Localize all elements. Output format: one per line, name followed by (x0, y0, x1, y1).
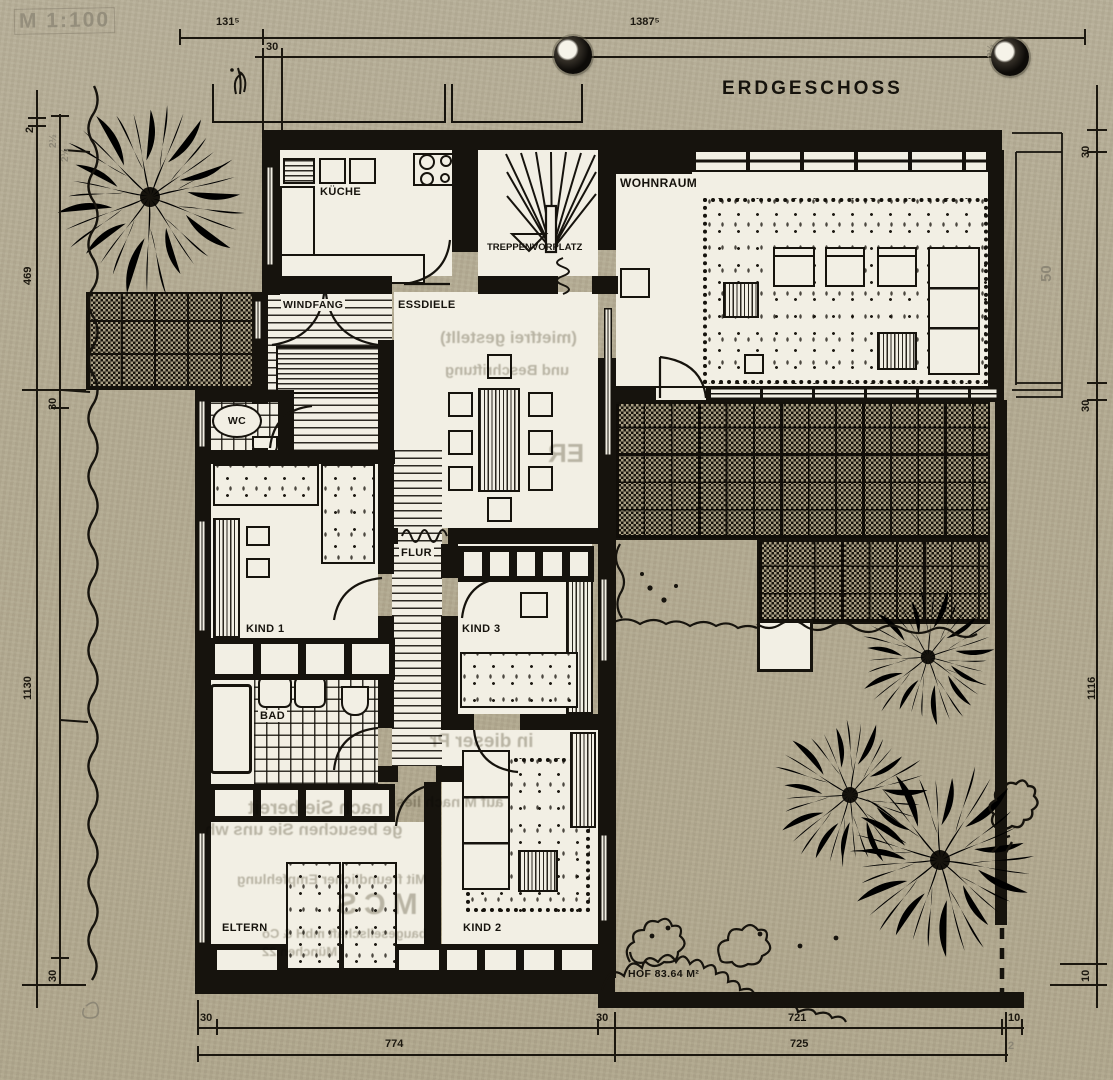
window-kind3 (600, 578, 608, 662)
room-label-treppenvorplatz: TREPPENVORPLATZ (487, 242, 582, 253)
window-kueche (266, 166, 274, 266)
room-label-kind3: KIND 3 (462, 623, 500, 635)
wall-segment (598, 148, 616, 250)
dim-line (255, 56, 1005, 58)
dining-chair (487, 497, 512, 522)
wall-segment (598, 992, 1024, 1008)
wall-segment (378, 452, 394, 574)
coffee-table (723, 282, 759, 318)
dim-value: 10 (1080, 970, 1092, 982)
play-table (518, 850, 558, 892)
desk (570, 732, 596, 828)
armchair (773, 247, 815, 287)
dim-value: 774 (385, 1038, 403, 1050)
wc-label-oval: WC (212, 404, 262, 438)
window-wc (198, 400, 206, 448)
garden-wall (995, 400, 1007, 925)
planter-box (757, 620, 813, 672)
wall-segment (378, 680, 394, 728)
dim-value: 721 (788, 1012, 806, 1024)
wall-segment (441, 714, 474, 730)
closet-band-bad (209, 784, 395, 822)
wall-segment (592, 276, 618, 294)
window-mullions (692, 150, 988, 172)
side-table (744, 354, 764, 374)
wall-segment (988, 150, 1004, 396)
bathtub (210, 684, 252, 774)
dim-tick (262, 48, 264, 64)
dim-extension (1060, 963, 1096, 965)
chair (246, 526, 270, 546)
room-label-essdiele: ESSDIELE (398, 299, 456, 311)
double-bed-right (342, 862, 397, 970)
dim-value: 30 (1080, 146, 1092, 158)
wall-segment (424, 782, 441, 944)
garden-pocket-edge (614, 544, 757, 628)
toilet (341, 686, 369, 716)
kitchen-cabinet (319, 158, 346, 184)
sofa (928, 247, 980, 375)
room-flur-floor (392, 450, 442, 766)
washbasin (294, 676, 326, 708)
floor-plan-scan: ERDGESCHOSS M 1:100 (0, 0, 1113, 1080)
window-kind2 (600, 834, 608, 922)
window-band-wohnraum-bottom (708, 388, 998, 399)
dim-tick (51, 957, 69, 959)
dim-tick (1021, 1019, 1023, 1035)
room-label-flur: FLUR (399, 547, 434, 559)
dining-table (478, 388, 520, 492)
dining-chair (528, 430, 553, 455)
dim-value-pencil: 50 (1038, 265, 1055, 282)
dim-value: 469 (22, 267, 34, 285)
wall-segment (452, 150, 478, 252)
small-plant (230, 68, 245, 94)
dim-tick (1087, 382, 1107, 384)
dim-value: 131⁵ (216, 16, 240, 28)
dim-value: 30 (47, 970, 59, 982)
dim-line (36, 90, 38, 1008)
wall-segment (520, 714, 598, 730)
room-label-kueche: KÜCHE (320, 186, 361, 198)
shelf-unit (462, 750, 510, 890)
side-table (620, 268, 650, 298)
tree-icon (57, 99, 251, 303)
wall-segment (441, 544, 458, 578)
dim-tick (216, 1019, 218, 1035)
dim-tick (1001, 1019, 1003, 1035)
room-label-bad: BAD (258, 710, 287, 722)
armchair (877, 247, 917, 287)
doormat (276, 346, 382, 394)
dim-extension (1050, 984, 1096, 986)
kitchen-cabinet (349, 158, 376, 184)
wall-segment (262, 130, 612, 150)
dim-value: 30 (266, 41, 278, 53)
dim-extension (1005, 1012, 1007, 1050)
bed (460, 652, 578, 708)
dim-line (180, 37, 1085, 39)
bed (321, 464, 375, 564)
dim-extension (22, 389, 86, 391)
dim-extension (281, 64, 283, 130)
wall-segment (436, 766, 462, 782)
window-essdiele (604, 308, 612, 456)
dim-extension (614, 1012, 616, 1050)
dim-tick (1084, 29, 1086, 45)
dim-line (198, 1027, 1024, 1029)
closet-band-kind3 (458, 546, 594, 582)
terrace-paving-extension (757, 540, 990, 624)
dining-chair (528, 466, 553, 491)
closet-band-kind1 (209, 638, 395, 680)
dim-value: 725 (790, 1038, 808, 1050)
hedge-line (88, 86, 97, 980)
wall-segment (598, 130, 1002, 150)
room-stair-floor (478, 150, 598, 276)
closet-band-kind2 (441, 944, 598, 976)
dining-chair (487, 354, 512, 379)
closet-eltern-right (399, 950, 439, 970)
room-label-wohnraum: WOHNRAUM (620, 176, 697, 190)
wall-segment (195, 390, 285, 402)
hof-label: HOF 83.64 M² (628, 968, 699, 980)
wall-segment (195, 450, 395, 464)
dim-value-pencil: 2½ (48, 134, 59, 148)
punch-hole-icon (991, 38, 1029, 76)
tree-icon (736, 688, 955, 904)
dining-chair (448, 430, 473, 455)
dim-value: 1387⁵ (630, 16, 660, 28)
dim-tick (51, 115, 69, 117)
punch-hole-icon (554, 36, 592, 74)
dim-value: 1130 (22, 676, 34, 700)
dim-line (1096, 85, 1098, 1008)
window-windfang (254, 300, 262, 340)
wall-segment (262, 276, 392, 294)
room-label-kind2: KIND 2 (463, 922, 501, 934)
chair (246, 558, 270, 578)
wall-segment (441, 616, 458, 716)
dim-tick (179, 29, 181, 45)
tree-icon (803, 717, 1074, 991)
chair (520, 592, 548, 618)
dim-value-pencil: 2 (1008, 1040, 1014, 1052)
dim-value: 1116 (1086, 677, 1098, 700)
closet-eltern-left (217, 950, 277, 970)
canopy-outline (213, 84, 582, 122)
dim-value-pencil: 2½ (60, 148, 71, 162)
dim-extension (197, 1000, 199, 1022)
dim-extension (22, 984, 86, 986)
door-gap-wohnraum (656, 388, 706, 400)
dim-value: 30 (596, 1012, 608, 1024)
dim-line (59, 114, 61, 986)
entry-path-paving (86, 292, 268, 390)
wall-segment (448, 528, 598, 544)
wall-segment (378, 766, 398, 782)
dim-tick (28, 117, 46, 119)
coffee-table (877, 332, 917, 370)
dining-chair (448, 466, 473, 491)
window-eltern (198, 832, 206, 944)
dim-value: 30 (1080, 400, 1092, 412)
dim-tick (281, 48, 283, 64)
dining-chair (528, 392, 553, 417)
room-label-eltern: ELTERN (222, 922, 268, 934)
wall-segment (195, 974, 615, 994)
scale-note: M 1:100 (14, 7, 115, 35)
dim-value: 2 (24, 127, 36, 133)
dim-value: 30 (47, 398, 59, 410)
wall-segment (378, 528, 398, 544)
washbasin (258, 676, 292, 708)
dining-chair (448, 392, 473, 417)
desk (213, 518, 240, 638)
armchair (825, 247, 865, 287)
room-label-windfang: WINDFANG (281, 299, 345, 311)
wall-segment (478, 276, 558, 294)
kitchen-counter (280, 186, 315, 256)
page-title: ERDGESCHOSS (722, 78, 903, 100)
terrace-paving-main (614, 402, 990, 540)
double-bed-left (286, 862, 341, 970)
room-label-wc: WC (228, 415, 246, 427)
dim-extension (262, 64, 264, 130)
window-kind1 (198, 520, 206, 632)
kitchen-appliance-hatched (283, 158, 315, 184)
room-label-kind1: KIND 1 (246, 623, 284, 635)
dim-tick (262, 29, 264, 45)
dim-value: 30 (200, 1012, 212, 1024)
dim-tick (1087, 129, 1107, 131)
dim-line (198, 1054, 1008, 1056)
hedge-ticks (60, 150, 90, 722)
bed (213, 464, 319, 506)
pencil-curl (83, 1002, 98, 1018)
dim-value: 10 (1008, 1012, 1020, 1024)
kitchen-stove (413, 153, 457, 186)
dim-tick (197, 1046, 199, 1062)
wall-segment (378, 340, 394, 452)
